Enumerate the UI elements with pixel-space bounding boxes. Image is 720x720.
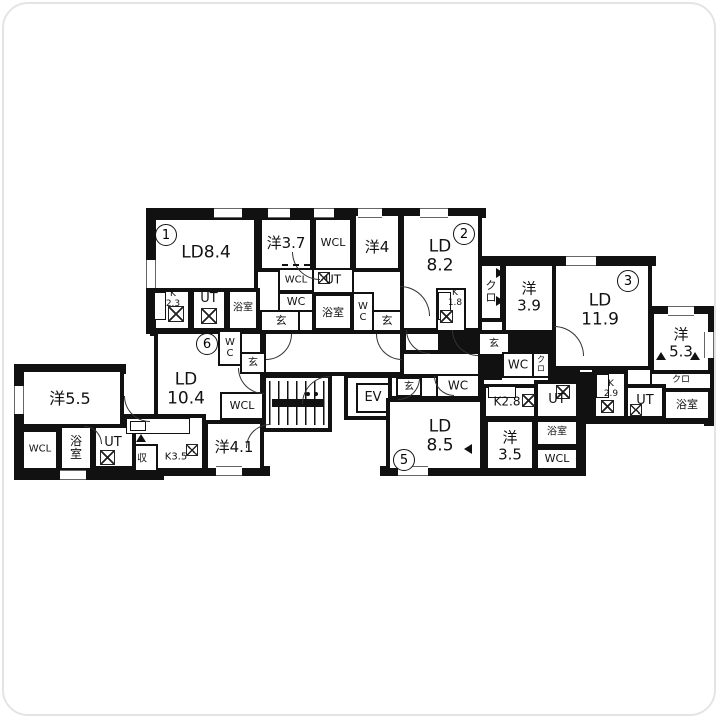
label-k28: K2.8: [494, 395, 521, 408]
label-ut4: UT: [548, 393, 565, 407]
label-storage: 収: [137, 454, 147, 465]
unit-number-5: 5: [393, 449, 415, 471]
window: [420, 208, 448, 218]
window: [358, 208, 382, 218]
window: [268, 208, 290, 218]
unit-number-6: 6: [196, 333, 218, 355]
counter-sink-icon: [130, 421, 146, 431]
sink-icon: [440, 310, 453, 323]
label-ld104: LD 10.4: [167, 370, 205, 407]
label-ut1: UT: [200, 292, 217, 306]
closet-opening: [282, 264, 310, 266]
label-wcl4: WCL: [230, 400, 255, 412]
label-ld84: LD8.4: [181, 244, 231, 263]
closet-opening: [24, 426, 56, 428]
window: [668, 306, 694, 316]
label-wcl5: WCL: [29, 444, 51, 455]
label-genkan1: 玄: [276, 315, 287, 327]
label-wcl1: WCL: [321, 237, 346, 249]
label-k29: K 2.9: [604, 380, 618, 400]
window: [214, 208, 242, 218]
label-kuro2: クロ: [672, 376, 690, 386]
label-bath2: 浴室: [322, 307, 344, 319]
window: [14, 386, 24, 414]
label-yo37: 洋3.7: [267, 235, 306, 252]
label-yo41: 洋4.1: [215, 439, 254, 456]
closet-door-mark: [464, 444, 472, 454]
label-yo53: 洋 5.3: [669, 327, 693, 360]
label-bath1: 浴室: [233, 303, 253, 314]
window: [146, 260, 156, 288]
unit-number-1: 1: [155, 224, 177, 246]
label-k23: K 2.3: [166, 290, 180, 310]
closet-door-mark: [496, 268, 504, 278]
kitchen-counter-icon: [154, 292, 166, 320]
label-yo55: 洋5.5: [49, 390, 90, 408]
label-ut3: UT: [636, 394, 653, 408]
label-wc3: WC: [508, 358, 528, 371]
label-genkan3: 玄: [489, 339, 499, 350]
window: [566, 256, 596, 266]
unit-number-2-text: 2: [460, 227, 468, 242]
unit-number-5-text: 5: [400, 453, 408, 468]
window: [60, 470, 86, 480]
closet-door-mark: [656, 352, 666, 360]
label-k35: K3.5: [165, 452, 187, 463]
label-wcl2: WCL: [285, 275, 307, 286]
label-bath5: 浴 室: [70, 435, 82, 461]
sink-icon: [186, 444, 198, 456]
label-genkan5: 玄: [248, 358, 258, 369]
floor-plan-canvas: 1 2 3 5 6 LD8.4 洋3.7 WCL 洋4 K 2.3 UT 浴室 …: [0, 0, 720, 720]
label-wc5: W C: [225, 337, 235, 359]
label-wcl3: WCL: [545, 453, 570, 465]
window: [314, 208, 334, 218]
label-k18: K 1.8: [448, 289, 462, 309]
label-ut5: UT: [104, 436, 121, 450]
unit-number-1-text: 1: [162, 228, 170, 243]
closet-door-mark: [496, 296, 504, 306]
label-ut2: UT: [325, 273, 341, 286]
label-kuro1: ク ロ: [486, 280, 497, 304]
unit-number-6-text: 6: [203, 337, 211, 352]
label-wc1: WC: [287, 296, 306, 308]
label-bath4: 浴室: [547, 427, 567, 438]
label-genkan2: 玄: [382, 315, 393, 327]
kitchen-counter-icon: [126, 418, 190, 434]
label-ld82: LD 8.2: [426, 237, 453, 274]
unit-number-3: 3: [617, 270, 639, 292]
label-ld85: LD 8.5: [426, 417, 453, 454]
sink-icon: [522, 394, 535, 407]
label-yo39: 洋 3.9: [517, 281, 541, 314]
label-kuro3: ク ロ: [537, 356, 545, 374]
unit-number-2: 2: [453, 223, 475, 245]
window: [216, 466, 242, 476]
label-wc2: W C: [358, 301, 368, 323]
closet-opening: [226, 418, 260, 420]
sink-icon: [601, 400, 614, 413]
label-ld119: LD 11.9: [581, 291, 619, 328]
closet-door-mark: [136, 434, 146, 442]
closet-opening: [350, 226, 352, 264]
label-elevator: EV: [364, 391, 381, 405]
label-genkan4: 玄: [404, 382, 414, 393]
unit-number-3-text: 3: [624, 274, 632, 289]
label-yo35: 洋 3.5: [498, 430, 522, 463]
sink-icon: [201, 308, 217, 324]
window: [704, 332, 714, 358]
label-yo4: 洋4: [365, 239, 390, 256]
label-wc4: WC: [448, 379, 468, 392]
sink-icon: [100, 450, 115, 465]
label-bath3: 浴室: [676, 399, 698, 411]
